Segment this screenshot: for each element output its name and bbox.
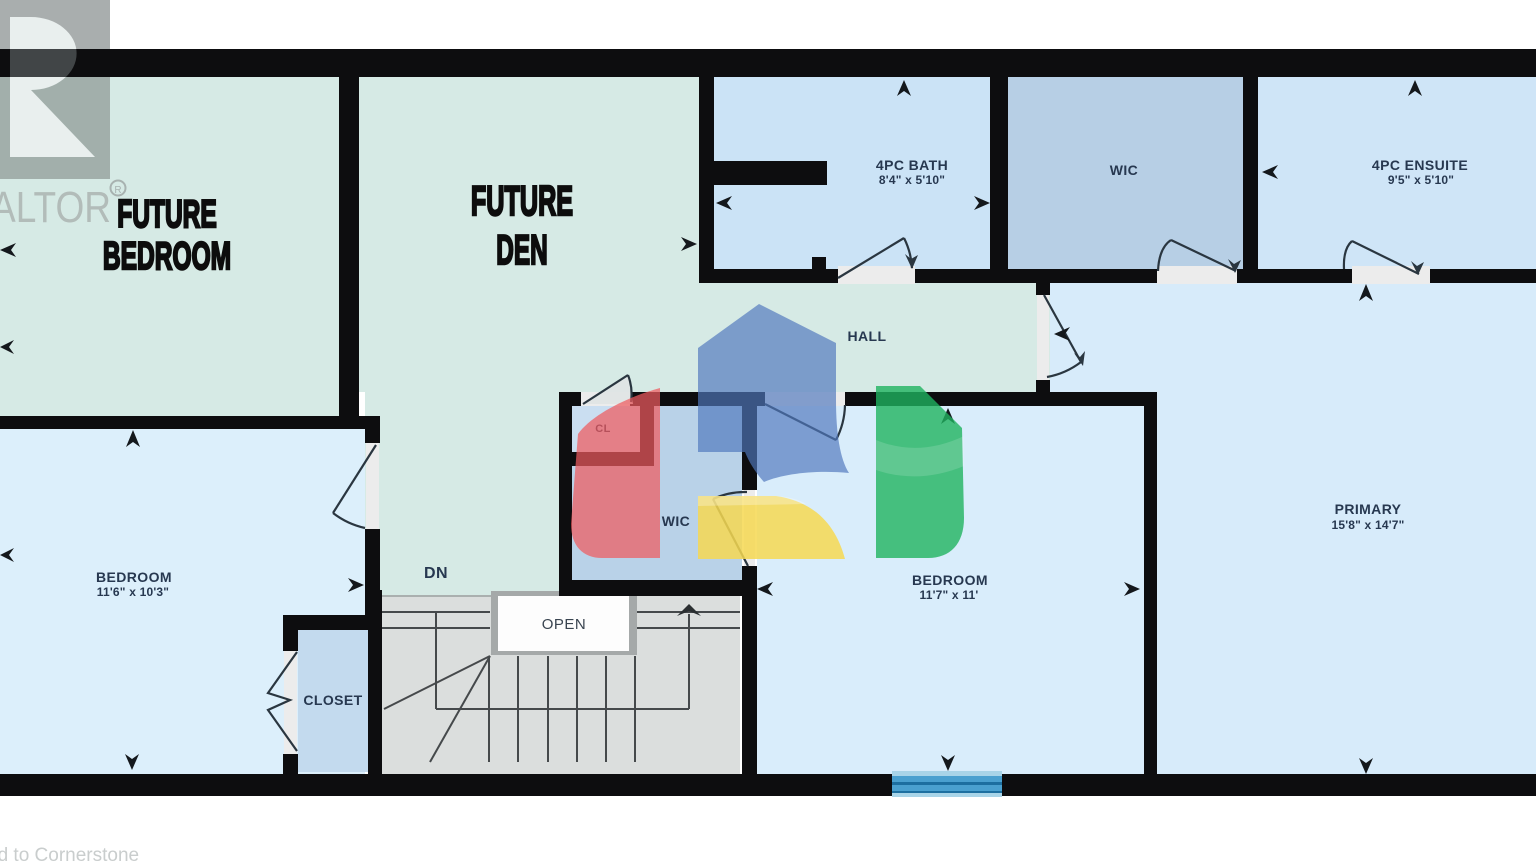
svg-text:BEDROOM: BEDROOM bbox=[103, 233, 231, 277]
svg-text:15'8" x 14'7": 15'8" x 14'7" bbox=[1331, 518, 1404, 532]
svg-text:HALL: HALL bbox=[848, 328, 887, 344]
svg-text:9'5" x 5'10": 9'5" x 5'10" bbox=[1388, 173, 1454, 187]
svg-text:4PC ENSUITE: 4PC ENSUITE bbox=[1372, 157, 1468, 173]
svg-text:WIC: WIC bbox=[1110, 162, 1138, 178]
svg-text:11'6" x 10'3": 11'6" x 10'3" bbox=[97, 585, 169, 599]
svg-text:FUTURE: FUTURE bbox=[471, 179, 573, 225]
svg-text:8'4" x 5'10": 8'4" x 5'10" bbox=[879, 173, 945, 187]
svg-text:11'7" x 11': 11'7" x 11' bbox=[920, 588, 979, 602]
svg-text:ed to Cornerstone: ed to Cornerstone bbox=[0, 845, 139, 864]
svg-text:BEDROOM: BEDROOM bbox=[96, 569, 172, 585]
svg-text:CLOSET: CLOSET bbox=[303, 692, 362, 708]
svg-text:4PC BATH: 4PC BATH bbox=[876, 157, 948, 173]
svg-text:DN: DN bbox=[424, 565, 448, 582]
svg-text:PRIMARY: PRIMARY bbox=[1335, 501, 1402, 517]
svg-text:DEN: DEN bbox=[496, 227, 547, 273]
svg-text:FUTURE: FUTURE bbox=[117, 191, 217, 235]
svg-text:BEDROOM: BEDROOM bbox=[912, 572, 988, 588]
svg-text:ALTOR: ALTOR bbox=[0, 183, 111, 232]
svg-text:OPEN: OPEN bbox=[542, 616, 587, 633]
svg-text:WIC: WIC bbox=[662, 513, 690, 529]
